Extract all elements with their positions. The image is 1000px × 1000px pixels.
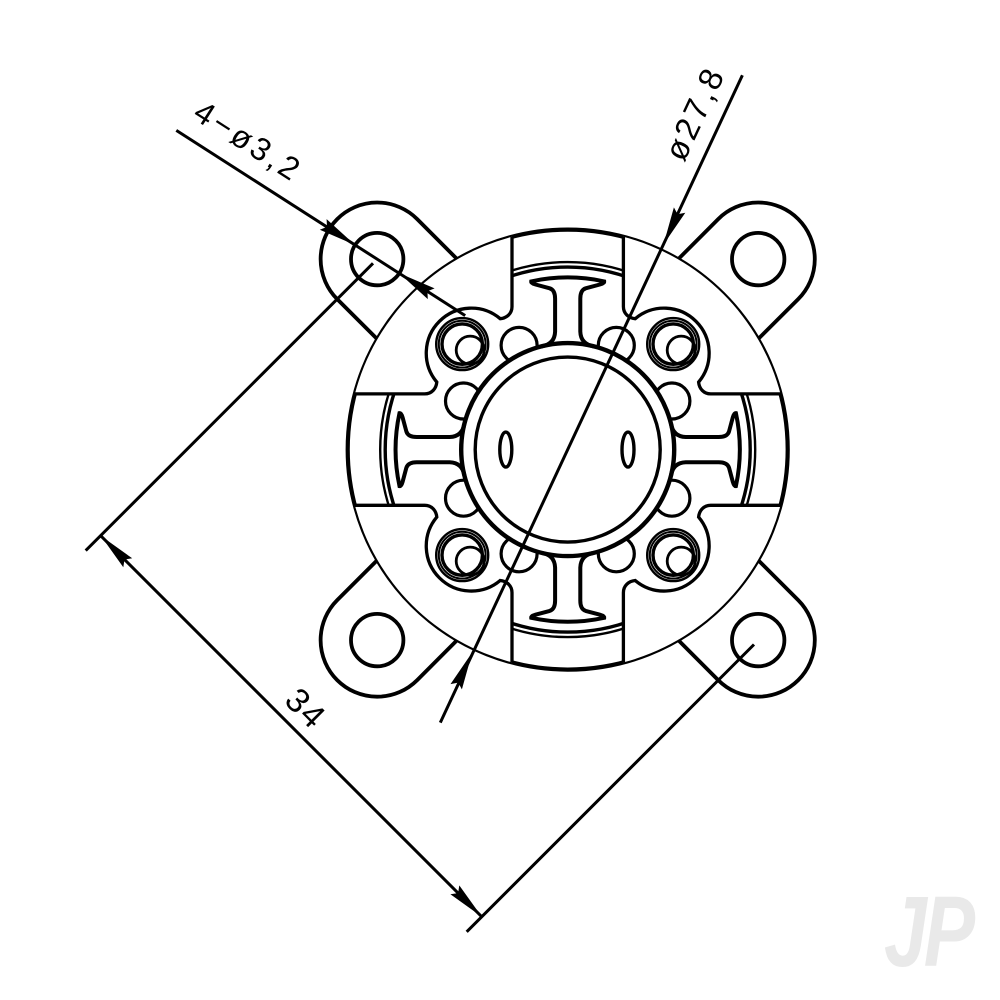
svg-text:JP: JP (884, 875, 976, 987)
